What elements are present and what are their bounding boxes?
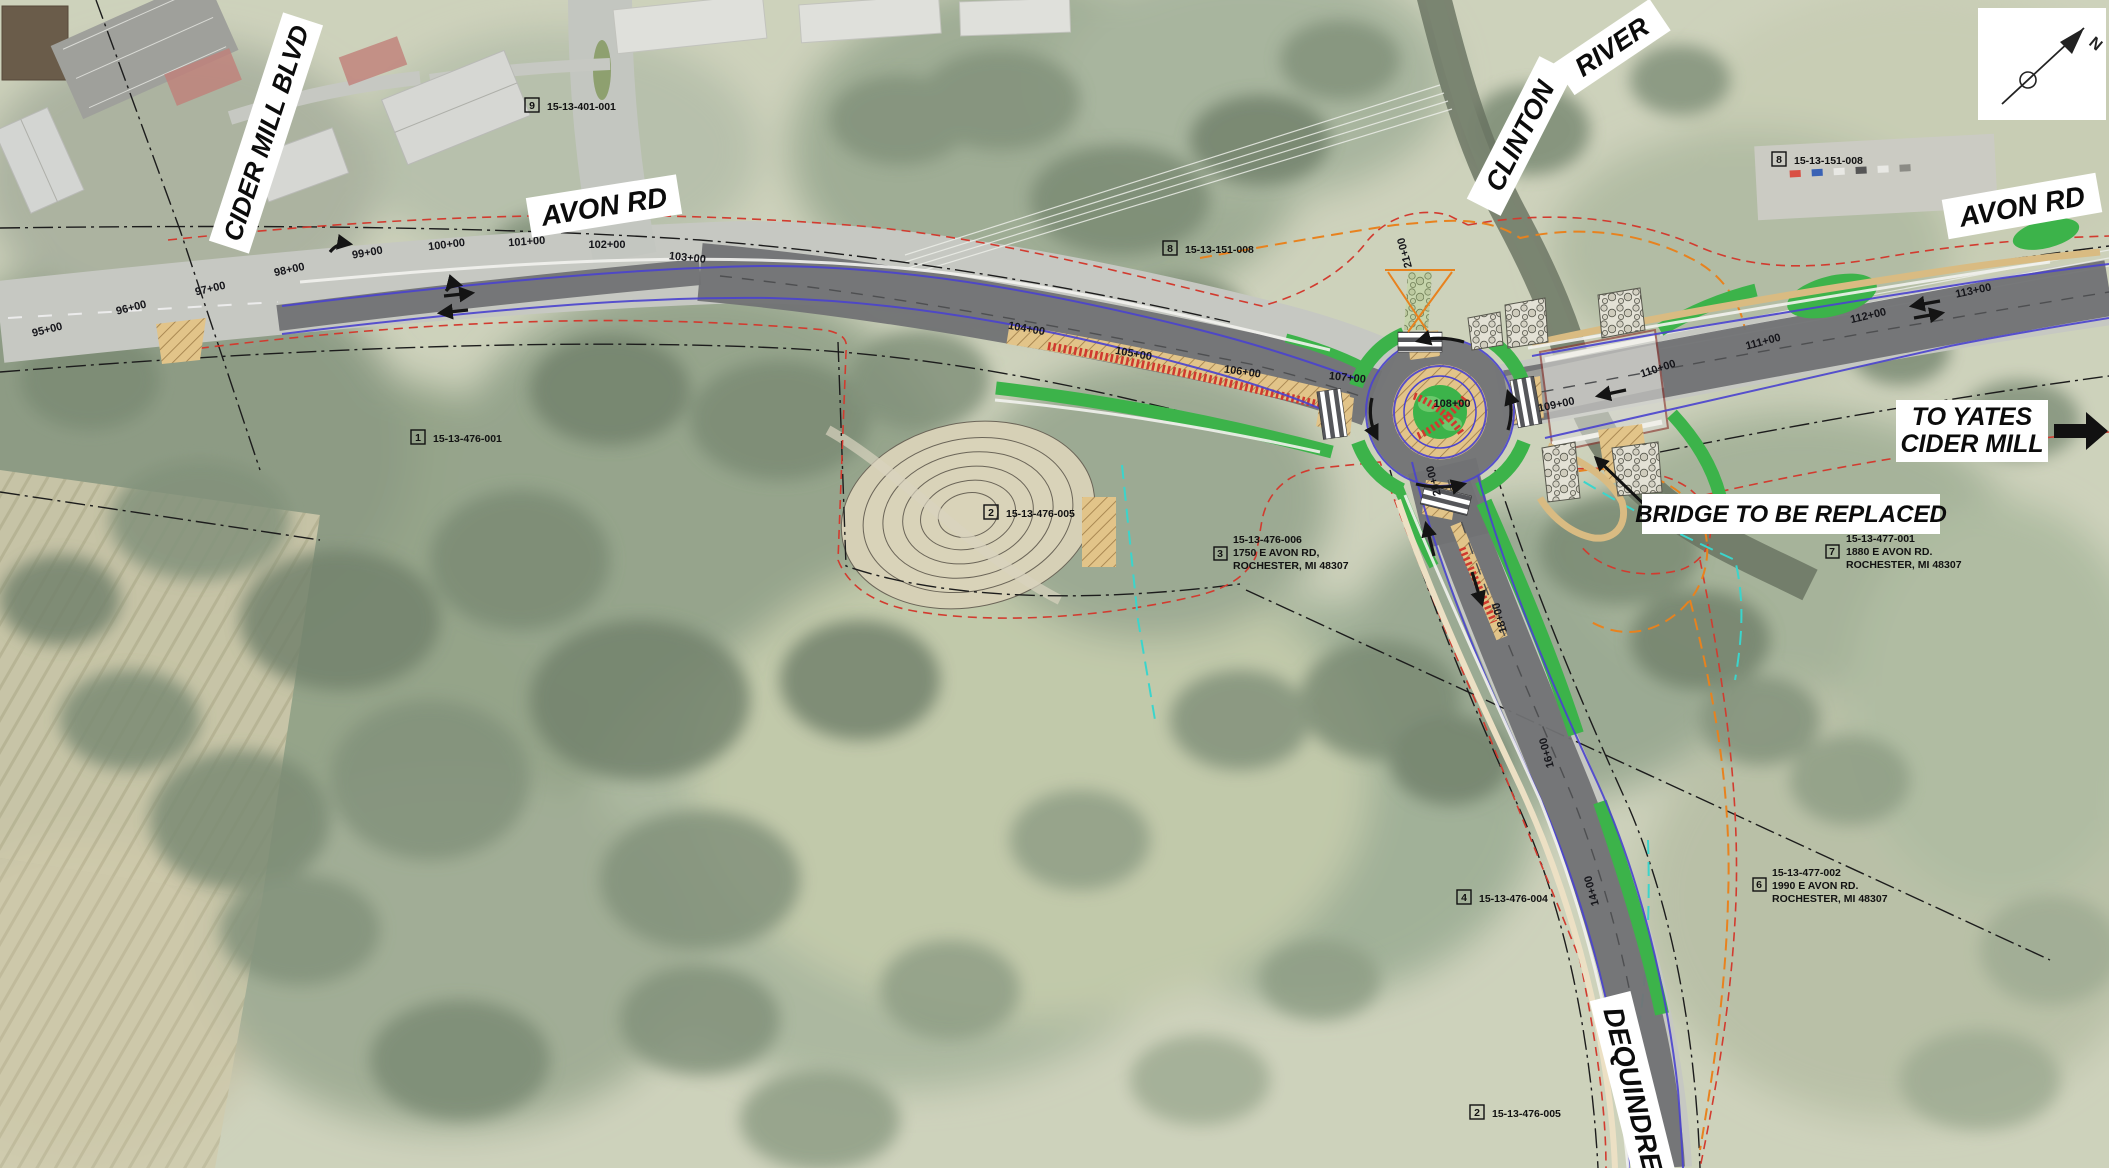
parcel-id: 15-13-476-001 <box>433 433 502 445</box>
parcel-id: 15-13-151-008 <box>1185 244 1254 256</box>
parcel-address: ROCHESTER, MI 48307 <box>1772 893 1888 905</box>
parcel-number: 4 <box>1461 892 1467 904</box>
parcel-number: 8 <box>1167 243 1173 255</box>
parcel-id: 15-13-476-005 <box>1492 1108 1561 1120</box>
parcel-number: 2 <box>988 507 994 519</box>
parcel-address: ROCHESTER, MI 48307 <box>1233 560 1349 572</box>
parcel-id: 15-13-401-001 <box>547 101 616 113</box>
central-island-landscaping <box>1413 385 1467 439</box>
parcel-id: 15-13-477-001 <box>1846 533 1915 545</box>
parcel-id: 15-13-476-006 <box>1233 534 1302 546</box>
parcel-id: 15-13-476-004 <box>1479 893 1548 905</box>
annotation-text: BRIDGE TO BE REPLACED <box>1635 501 1947 528</box>
parcel-number: 9 <box>529 100 535 112</box>
parcel-address: ROCHESTER, MI 48307 <box>1846 559 1962 571</box>
parcel-number: 7 <box>1829 546 1835 558</box>
north-arrow: N <box>1978 8 2106 120</box>
parcel-label: 8 15-13-151-008 <box>1772 152 1863 167</box>
parcel-label: 2 15-13-476-005 <box>984 505 1075 520</box>
station-label: 108+00 <box>1433 398 1470 410</box>
parcel-label: 2 15-13-476-005 <box>1470 1105 1561 1120</box>
parcel-id: 15-13-476-005 <box>1006 508 1075 520</box>
parcel-id: 15-13-151-008 <box>1794 155 1863 167</box>
parcel-number: 3 <box>1217 548 1223 560</box>
station-label: 102+00 <box>588 239 625 251</box>
parcel-label: 8 15-13-151-008 <box>1163 241 1254 256</box>
parcel-label: 1 15-13-476-001 <box>411 430 502 445</box>
parcel-number: 1 <box>415 432 421 444</box>
parcel-id: 15-13-477-002 <box>1772 867 1841 879</box>
parcel-address: 1990 E AVON RD. <box>1772 880 1858 892</box>
site-plan-map: 95+00 96+00 97+00 98+00 99+00 100+00 101… <box>0 0 2109 1168</box>
parcel-number: 2 <box>1474 1107 1480 1119</box>
parcel-number: 6 <box>1756 879 1762 891</box>
parcel-number: 8 <box>1776 154 1782 166</box>
parcel-address: 1750 E AVON RD, <box>1233 547 1319 559</box>
parcel-label: 4 15-13-476-004 <box>1457 890 1548 905</box>
parcel-address: 1880 E AVON RD. <box>1846 546 1932 558</box>
parcel-label: 9 15-13-401-001 <box>525 98 616 113</box>
annotation-text: TO YATES <box>1912 403 2033 431</box>
annotation-text: CIDER MILL <box>1900 430 2043 458</box>
